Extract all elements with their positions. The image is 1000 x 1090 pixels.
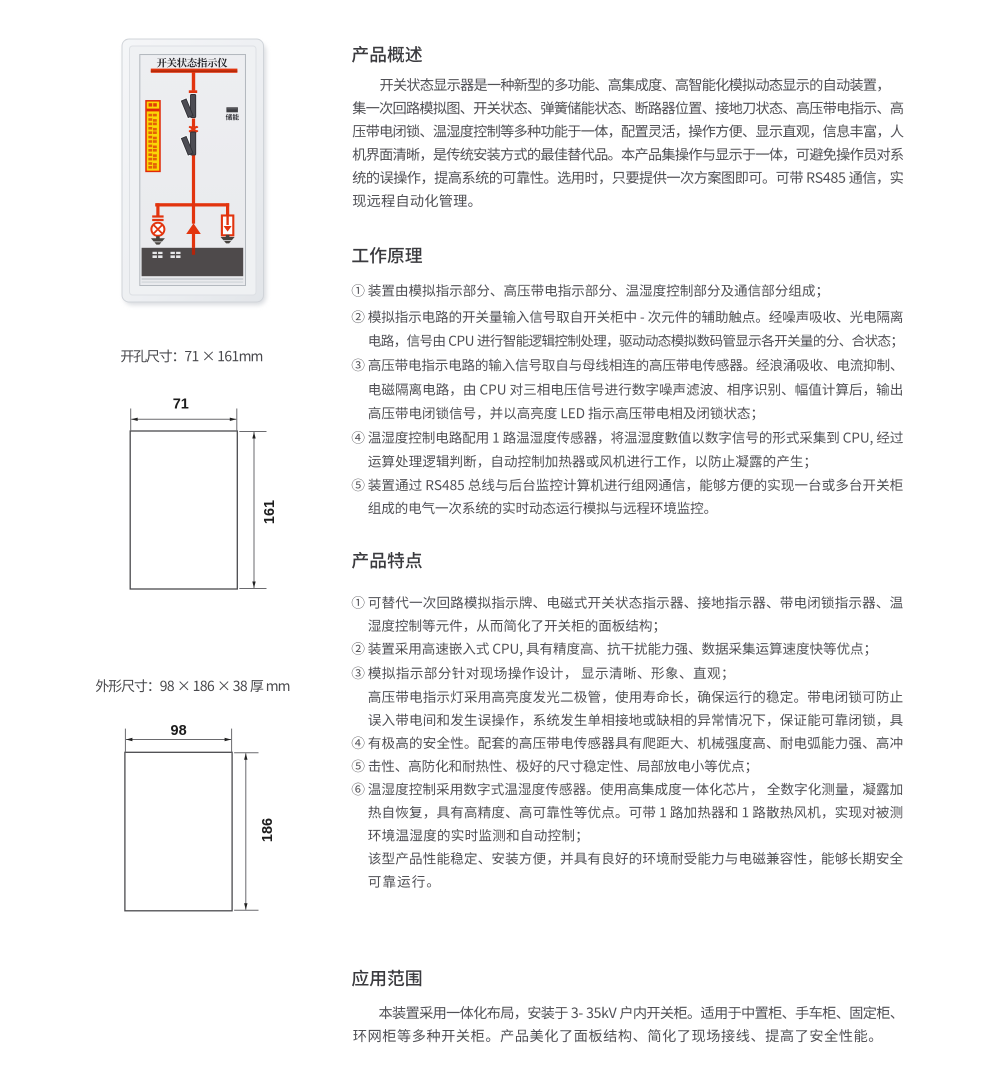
svg-text:186: 186	[260, 818, 276, 842]
svg-text:98: 98	[171, 723, 187, 739]
svg-text:71: 71	[173, 397, 189, 413]
svg-text:161: 161	[262, 500, 278, 524]
